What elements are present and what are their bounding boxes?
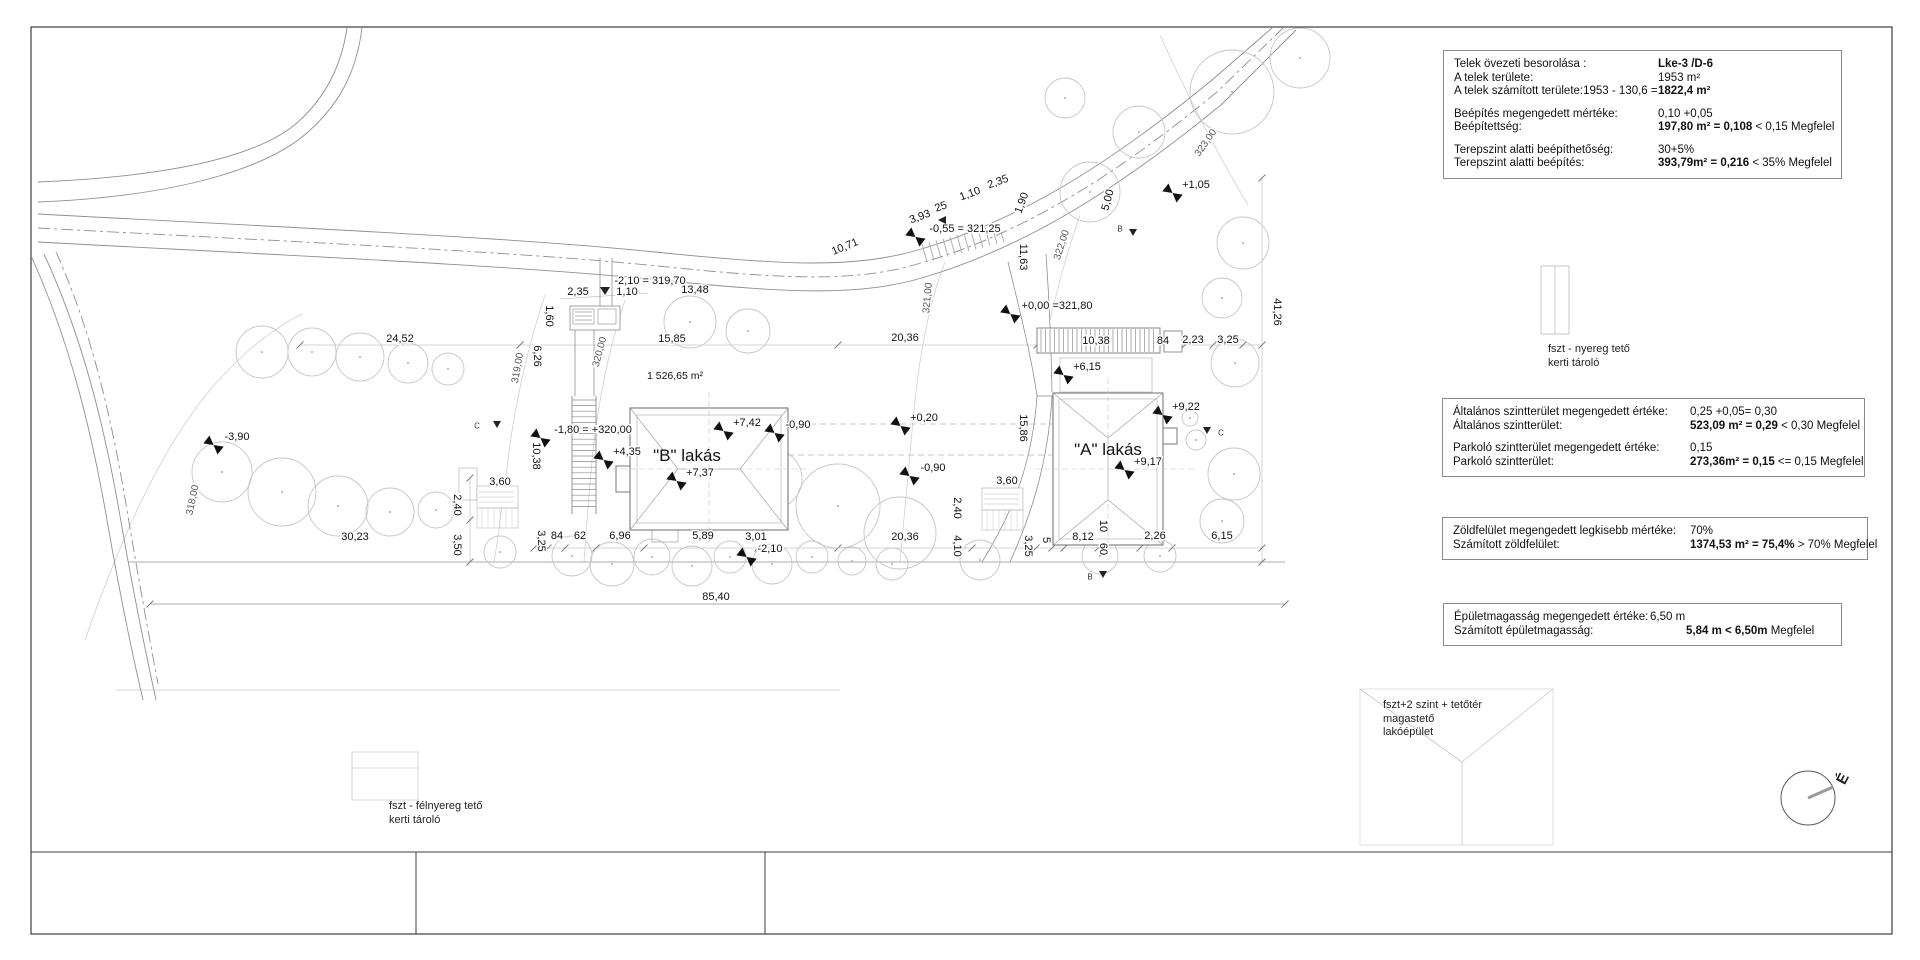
north-arrow xyxy=(1781,771,1835,825)
section-marker-icon xyxy=(1129,229,1137,236)
info-row: Terepszint alatti beépítés:393,79m² = 0,… xyxy=(1454,157,1831,171)
info-row-label: Számított zöldfelület: xyxy=(1453,539,1690,553)
dim-label: 5 xyxy=(1040,537,1052,543)
info-row-value: 273,36m² = 0,15 <= 0,15 Megfelel xyxy=(1690,456,1864,470)
contour-label: 322,00 xyxy=(1052,228,1072,261)
waste-bin-box xyxy=(570,306,620,330)
info-row-label: Terepszint alatti beépítés: xyxy=(1454,157,1658,171)
dim-label: 4,10 xyxy=(951,535,963,556)
dim-label: 10,71 xyxy=(830,236,860,257)
info-row-label: A telek területe: xyxy=(1454,72,1658,86)
section-marker-icon xyxy=(1203,427,1211,434)
contour-label: 323,00 xyxy=(1193,127,1220,159)
info-row-value: 0,15 xyxy=(1690,442,1712,456)
spot-level-label: -2,10 xyxy=(757,543,782,555)
dim-label: 10 xyxy=(1097,520,1109,532)
road-lines xyxy=(32,28,1296,700)
spot-level-label: +7,37 xyxy=(686,467,714,479)
plot-area-label: 1 526,65 m² xyxy=(647,370,703,382)
green-area-info-box: Zöldfelület megengedett legkisebb mérték… xyxy=(1442,517,1868,560)
spot-level-label: +1,05 xyxy=(1182,179,1210,191)
info-row-label: Beépítés megengedett mértéke: xyxy=(1454,108,1658,122)
dim-label: 6,96 xyxy=(609,530,630,542)
spot-level-label: +0,00 =321,80 xyxy=(1022,300,1093,312)
section-marker-letter: B xyxy=(1087,573,1092,582)
section-marker-letter: B xyxy=(1117,225,1122,234)
dim-label: 13,48 xyxy=(681,284,709,296)
info-row-value: 1953 m² xyxy=(1658,72,1700,86)
dim-label: 24,52 xyxy=(386,333,414,345)
garden-shed-gable-label: fszt - nyereg tető kerti tároló xyxy=(1548,343,1630,370)
dim-label: 84 xyxy=(551,530,563,542)
spot-level-label: +4,35 xyxy=(613,446,641,458)
dim-label: 60 xyxy=(1097,543,1109,555)
dim-label: 11,63 xyxy=(1017,244,1029,271)
info-row-label: Számított épületmagasság: xyxy=(1454,625,1650,639)
info-row-value: 197,80 m² = 0,108 < 0,15 Megfelel xyxy=(1658,121,1834,135)
info-row: Épületmagasság megengedett értéke:6,50 m xyxy=(1454,611,1831,625)
info-row-value: 6,50 m xyxy=(1650,611,1685,625)
info-row-label: Parkoló szintterület megengedett értéke: xyxy=(1453,442,1690,456)
info-row: Terepszint alatti beépíthetőség:30+5% xyxy=(1454,144,1831,158)
spot-level-label: -0,55 = 321,25 xyxy=(929,223,1000,235)
level-marker-icon xyxy=(890,417,910,436)
dim-label: 8,12 xyxy=(1072,531,1093,543)
spot-level-label: -0,90 xyxy=(920,462,945,474)
label-line: fszt - nyereg tető xyxy=(1548,343,1630,357)
label-line: kerti tároló xyxy=(1548,357,1630,371)
dim-label: 20,36 xyxy=(891,332,919,344)
house-a xyxy=(1035,378,1195,560)
info-row: Általános szintterület:523,09 m² = 0,29 … xyxy=(1453,420,1854,434)
section-marker-letter: C xyxy=(1218,429,1224,438)
main-building-label: fszt+2 szint + tetőtér magastető lakóépü… xyxy=(1383,699,1482,740)
info-row: Parkoló szintterület:273,36m² = 0,15 <= … xyxy=(1453,456,1854,470)
building-height-info-box: Épületmagasság megengedett értéke:6,50 m… xyxy=(1443,603,1842,646)
info-row-value: 523,09 m² = 0,29 < 0,30 Megfelel xyxy=(1690,420,1860,434)
dim-label: 10,38 xyxy=(530,442,542,470)
info-row: Beépítés megengedett mértéke:0,10 +0,05 xyxy=(1454,108,1831,122)
dim-label: 6,15 xyxy=(1211,530,1232,542)
info-row: A telek területe:1953 m² xyxy=(1454,72,1831,86)
garden-shed-halfgable-label: fszt - félnyereg tető kerti tároló xyxy=(389,800,483,827)
label-line: kerti tároló xyxy=(389,814,483,828)
info-row-value: 1374,53 m² = 75,4% > 70% Megfelel xyxy=(1690,539,1877,553)
dim-label: 3,50 xyxy=(451,534,463,555)
dim-label: 2,35 xyxy=(986,173,1010,192)
level-marker-icon xyxy=(203,436,223,455)
spot-level-label: +7,42 xyxy=(733,417,761,429)
house-a-label: "A" lakás xyxy=(1074,440,1142,460)
dim-label: 62 xyxy=(574,530,586,542)
info-row-label: Általános szintterület: xyxy=(1453,420,1690,434)
info-row-label: Parkoló szintterület: xyxy=(1453,456,1690,470)
dim-label: 2,26 xyxy=(1144,530,1165,542)
zoning-info-box: Telek övezeti besorolása :Lke-3 /D-6A te… xyxy=(1443,50,1842,179)
contour-label: 320,00 xyxy=(591,335,610,368)
dim-label: 10,38 xyxy=(1082,335,1110,347)
spot-level-label: -1,80 = +320,00 xyxy=(554,424,632,436)
info-row: Számított épületmagasság:5,84 m < 6,50m … xyxy=(1454,625,1831,639)
dim-label: 2,35 xyxy=(567,286,588,298)
dim-label: 1,10 xyxy=(616,286,637,298)
info-row-label: Zöldfelület megengedett legkisebb mérték… xyxy=(1453,525,1690,539)
section-marker-letter: C xyxy=(474,422,480,431)
row-gap xyxy=(1453,433,1854,442)
contour-label: 319,00 xyxy=(510,352,526,384)
dim-label: 2,23 xyxy=(1182,334,1203,346)
info-row-value: 393,79m² = 0,216 < 35% Megfelel xyxy=(1658,157,1832,171)
dim-label: 1,90 xyxy=(1013,191,1032,215)
dim-label: 3,60 xyxy=(996,475,1017,487)
info-row-label: Terepszint alatti beépíthetőség: xyxy=(1454,144,1658,158)
level-marker-icon xyxy=(1053,366,1073,385)
dim-label: 20,36 xyxy=(891,531,919,543)
dim-label: 3,25 xyxy=(1217,334,1238,346)
info-row-label: Telek övezeti besorolása : xyxy=(1454,58,1658,72)
misc-structures xyxy=(459,358,1152,542)
info-row: Számított zöldfelület:1374,53 m² = 75,4%… xyxy=(1453,539,1857,553)
dim-label: 3,60 xyxy=(489,476,510,488)
level-marker-icon xyxy=(905,228,925,247)
dim-label: 6,26 xyxy=(531,345,543,366)
dim-label: 84 xyxy=(1157,335,1169,347)
floor-area-info-box: Általános szintterület megengedett érték… xyxy=(1442,398,1865,477)
dim-label: 5,00 xyxy=(1099,188,1116,212)
site-plan-page: -2,10 = 319,7013,482,351,1024,5215,8520,… xyxy=(0,0,1920,960)
spot-level-label: +9,22 xyxy=(1172,401,1200,413)
dim-label: 3,25 xyxy=(1022,535,1034,556)
spot-level-label: +0,20 xyxy=(910,412,938,424)
spot-level-label: -3,90 xyxy=(224,431,249,443)
spot-level-label: -0,90 xyxy=(785,419,810,431)
section-marker-icon xyxy=(1099,571,1107,578)
info-row: Általános szintterület megengedett érték… xyxy=(1453,406,1854,420)
level-marker-icon xyxy=(1162,184,1182,203)
label-line: magastető xyxy=(1383,713,1482,727)
info-row-label: A telek számított területe:1953 - 130,6 … xyxy=(1454,85,1658,99)
dim-label: 1,60 xyxy=(543,305,555,326)
info-row-value: 5,84 m < 6,50m Megfelel xyxy=(1650,625,1814,639)
info-row-value: 70% xyxy=(1690,525,1713,539)
label-line: fszt+2 szint + tetőtér xyxy=(1383,699,1482,713)
dim-label: 3,25 xyxy=(535,530,547,551)
label-line: lakóépület xyxy=(1383,726,1482,740)
dim-label: 3,01 xyxy=(745,531,766,543)
info-row: A telek számított területe:1953 - 130,6 … xyxy=(1454,85,1831,99)
level-marker-icon xyxy=(1000,305,1020,324)
info-row-value: 30+5% xyxy=(1658,144,1694,158)
info-row: Telek övezeti besorolása :Lke-3 /D-6 xyxy=(1454,58,1831,72)
dim-label: 41,26 xyxy=(1271,298,1283,326)
info-row-label: Épületmagasság megengedett értéke: xyxy=(1454,611,1650,625)
info-row: Zöldfelület megengedett legkisebb mérték… xyxy=(1453,525,1857,539)
row-gap xyxy=(1454,99,1831,108)
dim-label: 15,86 xyxy=(1017,414,1029,442)
contour-label: 318,00 xyxy=(184,483,201,516)
info-row-label: Beépítettség: xyxy=(1454,121,1658,135)
level-marker-icon xyxy=(899,467,919,486)
row-gap xyxy=(1454,135,1831,144)
house-b-label: "B" lakás xyxy=(653,446,721,466)
dim-label: 5,89 xyxy=(692,530,713,542)
info-row: Parkoló szintterület megengedett értéke:… xyxy=(1453,442,1854,456)
section-marker-icon xyxy=(493,421,501,428)
info-row-label: Általános szintterület megengedett érték… xyxy=(1453,406,1690,420)
label-line: fszt - félnyereg tető xyxy=(389,800,483,814)
info-row-value: 1822,4 m² xyxy=(1658,85,1710,99)
info-row-value: 0,10 +0,05 xyxy=(1658,108,1713,122)
dim-label: 2,40 xyxy=(951,497,963,518)
contour-label: 321,00 xyxy=(921,282,935,314)
dim-label: 1,10 xyxy=(958,185,982,204)
info-row-value: 0,25 +0,05= 0,30 xyxy=(1690,406,1777,420)
info-row-value: Lke-3 /D-6 xyxy=(1658,58,1713,72)
info-row: Beépítettség:197,80 m² = 0,108 < 0,15 Me… xyxy=(1454,121,1831,135)
dim-label: 85,40 xyxy=(702,591,730,603)
dim-label: 2,40 xyxy=(451,494,463,515)
dim-label: 25 xyxy=(933,199,949,214)
dim-label: 15,85 xyxy=(658,333,686,345)
dim-label: 30,23 xyxy=(341,531,369,543)
spot-level-label: +6,15 xyxy=(1073,361,1101,373)
